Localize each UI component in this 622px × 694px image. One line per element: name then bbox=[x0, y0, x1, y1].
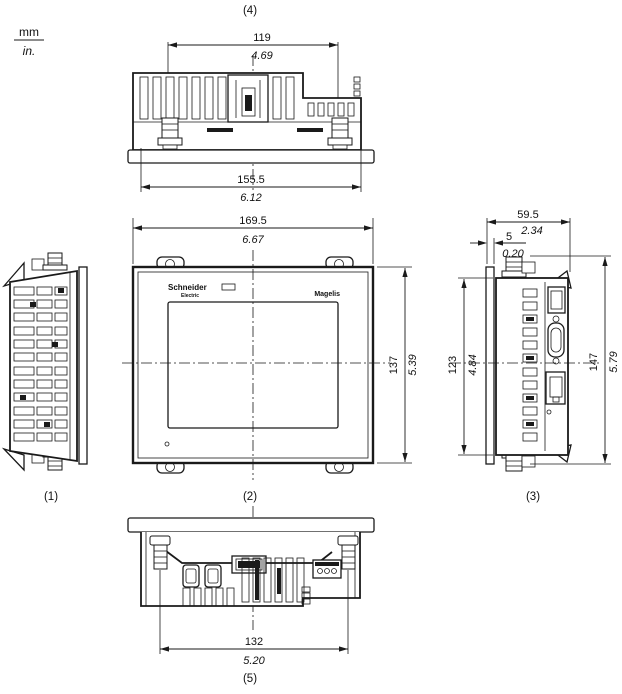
dim-arrow bbox=[402, 453, 407, 462]
dim-mm: 137 bbox=[388, 356, 400, 374]
dim-inch: 2.34 bbox=[520, 225, 542, 237]
dim-mm: 123 bbox=[447, 356, 459, 374]
dim-arrow bbox=[487, 219, 496, 224]
dim-inch: 5.20 bbox=[243, 655, 265, 667]
dim-arrow bbox=[329, 42, 338, 47]
dim-inch: 4.84 bbox=[467, 354, 479, 375]
dimensional-drawing-page: mm in. (4) 119 4.69 bbox=[0, 0, 622, 694]
view-top-label: (4) bbox=[243, 5, 257, 17]
dim-inch: 6.67 bbox=[242, 234, 264, 246]
dim-arrow bbox=[133, 225, 142, 230]
dim-inch: 5.39 bbox=[407, 354, 419, 375]
dim-mm: 132 bbox=[245, 636, 263, 648]
top-mounting-screw bbox=[158, 118, 182, 149]
right-bezel-plate bbox=[486, 267, 494, 464]
view-right: 59.5 2.34 5 0.20 bbox=[447, 209, 620, 503]
dim-front-height: 137 5.39 bbox=[377, 267, 419, 463]
view-top: (4) 119 4.69 bbox=[128, 5, 374, 204]
left-bezel-plate bbox=[79, 267, 87, 464]
dim-mm: 147 bbox=[588, 353, 600, 371]
bottom-bezel-flange bbox=[128, 518, 374, 532]
dim-arrow bbox=[339, 646, 348, 651]
brand-logo-line1: Schneider bbox=[168, 283, 207, 292]
units-mm-label: mm bbox=[19, 25, 39, 39]
top-din-clip bbox=[228, 75, 268, 122]
dim-inch: 4.69 bbox=[251, 50, 272, 62]
dim-mm: 119 bbox=[253, 32, 271, 44]
dim-arrow bbox=[561, 219, 570, 224]
top-edge-slot bbox=[354, 77, 360, 82]
dim-arrow bbox=[478, 240, 487, 245]
drawing-svg: mm in. (4) 119 4.69 bbox=[0, 0, 622, 694]
power-terminal bbox=[313, 560, 341, 578]
top-edge-slot bbox=[354, 91, 360, 96]
dim-arrow bbox=[494, 240, 503, 245]
dim-mm: 169.5 bbox=[239, 215, 267, 227]
dim-mm: 5 bbox=[506, 231, 512, 243]
top-dash-mark bbox=[297, 128, 323, 132]
dim-mm: 59.5 bbox=[517, 209, 538, 221]
dim-arrow bbox=[461, 279, 466, 288]
top-mounting-screw bbox=[328, 118, 352, 149]
view-front-label: (2) bbox=[243, 491, 257, 503]
view-bottom-label: (5) bbox=[243, 673, 257, 685]
right-mounting-screw bbox=[502, 257, 535, 277]
dim-arrow bbox=[141, 184, 150, 189]
dim-mm: 155.5 bbox=[237, 174, 265, 186]
top-bezel-flange bbox=[128, 150, 374, 163]
dim-arrow bbox=[602, 454, 607, 463]
view-right-label: (3) bbox=[526, 491, 540, 503]
dim-arrow bbox=[352, 184, 361, 189]
dim-inch: 6.12 bbox=[240, 192, 261, 204]
left-mounting-screw bbox=[32, 253, 67, 270]
dim-arrow bbox=[160, 646, 169, 651]
brand-logo-line2: Electric bbox=[181, 293, 199, 299]
dim-arrow bbox=[461, 445, 466, 454]
product-name-label: Magelis bbox=[314, 291, 340, 298]
dim-arrow bbox=[402, 268, 407, 277]
dim-arrow bbox=[364, 225, 373, 230]
view-left: (1) bbox=[4, 253, 87, 503]
top-edge-slot bbox=[354, 84, 360, 89]
view-left-label: (1) bbox=[44, 491, 58, 503]
units-inch-label: in. bbox=[23, 44, 36, 58]
view-bottom: 132 5.20 (5) bbox=[128, 506, 374, 685]
top-dash-mark bbox=[207, 128, 233, 132]
units-legend: mm in. bbox=[14, 25, 44, 58]
left-body-outline bbox=[10, 271, 77, 461]
dim-arrow bbox=[168, 42, 177, 47]
view-front: 169.5 6.67 Schneider Electric Magelis bbox=[122, 215, 419, 503]
dim-arrow bbox=[602, 257, 607, 266]
usb-port bbox=[548, 287, 565, 313]
dim-inch: 5.79 bbox=[608, 351, 620, 372]
